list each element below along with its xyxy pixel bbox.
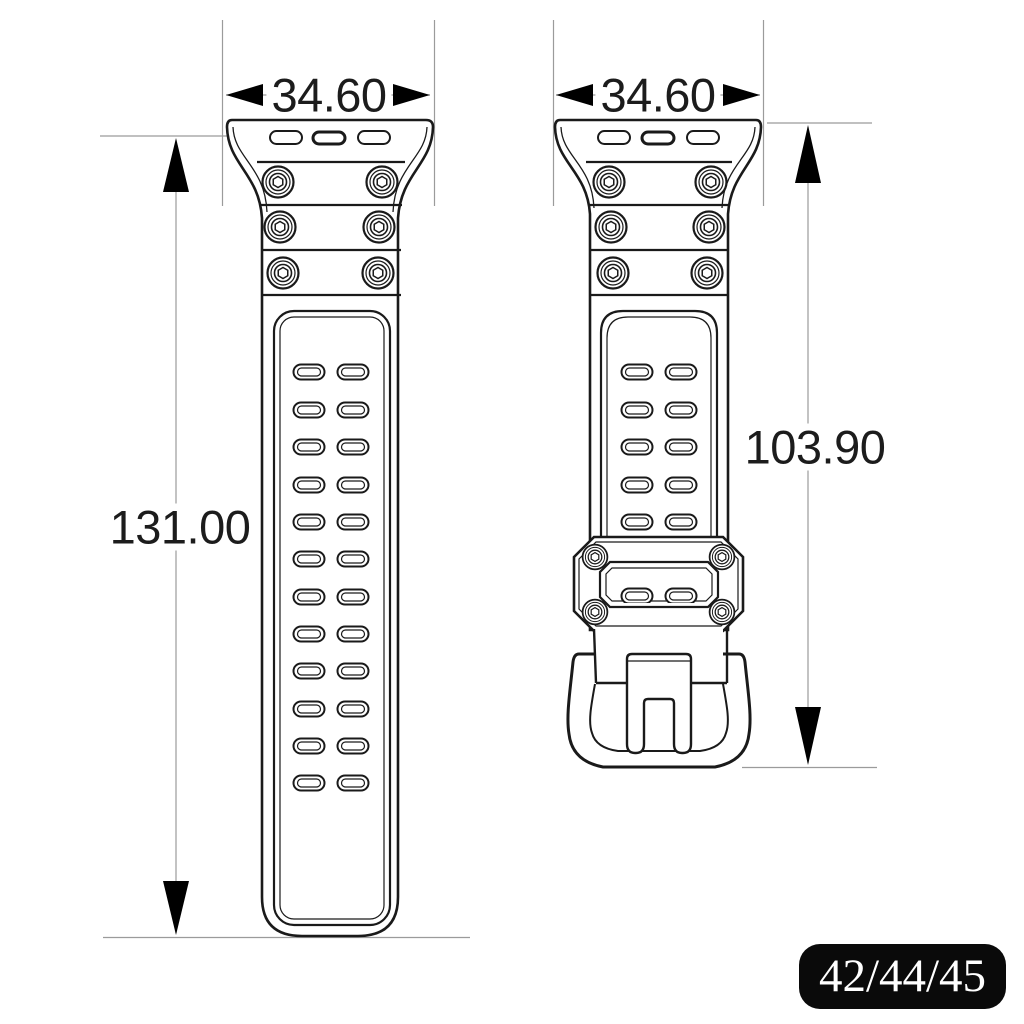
screw-icon xyxy=(268,258,299,289)
strap-drawing-page: 34.60 34.60 131.00 103.90 42/44/45 xyxy=(0,0,1024,1024)
arrow-down-icon xyxy=(163,881,189,935)
vent-hole xyxy=(338,515,369,530)
size-badge-label: 42/44/45 xyxy=(819,953,986,1000)
vent-hole xyxy=(622,365,653,380)
arrow-left-icon xyxy=(226,84,263,106)
dimension-length-right: 103.90 xyxy=(740,424,891,471)
screw-icon xyxy=(594,167,625,198)
arrow-right-icon xyxy=(723,84,760,106)
vent-hole xyxy=(338,478,369,493)
vent-hole xyxy=(338,365,369,380)
vent-hole xyxy=(338,440,369,455)
dimension-width-left: 34.60 xyxy=(266,72,391,119)
buckle xyxy=(568,629,750,767)
screw-icon xyxy=(596,212,627,243)
screw-icon xyxy=(367,167,398,198)
arrow-left-icon xyxy=(556,84,593,106)
vent-hole xyxy=(294,478,325,493)
screw-icon xyxy=(583,545,608,570)
screw-icon xyxy=(265,212,296,243)
screw-icon xyxy=(583,600,608,625)
screw-icon xyxy=(364,212,395,243)
arrow-up-icon xyxy=(163,138,189,192)
vent-hole xyxy=(338,590,369,605)
vent-hole xyxy=(666,440,697,455)
keeper-plate xyxy=(574,537,743,631)
arrow-right-icon xyxy=(393,84,430,106)
screw-icon xyxy=(263,167,294,198)
vent-hole xyxy=(294,552,325,567)
arrow-up-icon xyxy=(795,125,821,183)
screw-icon xyxy=(710,545,735,570)
vent-hole xyxy=(294,739,325,754)
vent-hole xyxy=(294,403,325,418)
screw-icon xyxy=(694,212,725,243)
screw-icon xyxy=(692,258,723,289)
vent-hole xyxy=(666,589,697,604)
screw-icon xyxy=(696,167,727,198)
vent-hole xyxy=(666,478,697,493)
vent-hole xyxy=(294,664,325,679)
strap-outline xyxy=(227,120,433,936)
vent-hole xyxy=(338,403,369,418)
vent-hole xyxy=(666,403,697,418)
long-strap-view xyxy=(227,120,433,936)
vent-hole xyxy=(294,702,325,717)
vent-hole xyxy=(622,403,653,418)
dimension-annotations xyxy=(100,20,877,938)
vent-hole xyxy=(294,776,325,791)
vent-hole xyxy=(338,552,369,567)
dimension-width-right: 34.60 xyxy=(595,72,720,119)
vent-hole xyxy=(294,365,325,380)
screw-icon xyxy=(363,258,394,289)
vent-hole xyxy=(338,627,369,642)
vent-hole xyxy=(338,776,369,791)
arrow-down-icon xyxy=(795,707,821,765)
vent-hole xyxy=(622,515,653,530)
vent-hole xyxy=(294,590,325,605)
dimension-length-left: 131.00 xyxy=(105,504,256,551)
vent-hole xyxy=(622,440,653,455)
size-badge: 42/44/45 xyxy=(799,944,1006,1009)
vent-hole xyxy=(622,589,653,604)
vent-hole xyxy=(666,515,697,530)
screw-icon xyxy=(710,600,735,625)
screw-icon xyxy=(598,258,629,289)
vent-hole xyxy=(666,365,697,380)
vent-hole xyxy=(338,739,369,754)
vent-hole xyxy=(294,627,325,642)
vent-hole xyxy=(622,478,653,493)
vent-hole xyxy=(294,515,325,530)
keeper-window xyxy=(600,562,718,607)
vent-hole xyxy=(294,440,325,455)
vent-hole xyxy=(338,664,369,679)
short-strap-view xyxy=(555,120,761,767)
vent-hole xyxy=(338,702,369,717)
